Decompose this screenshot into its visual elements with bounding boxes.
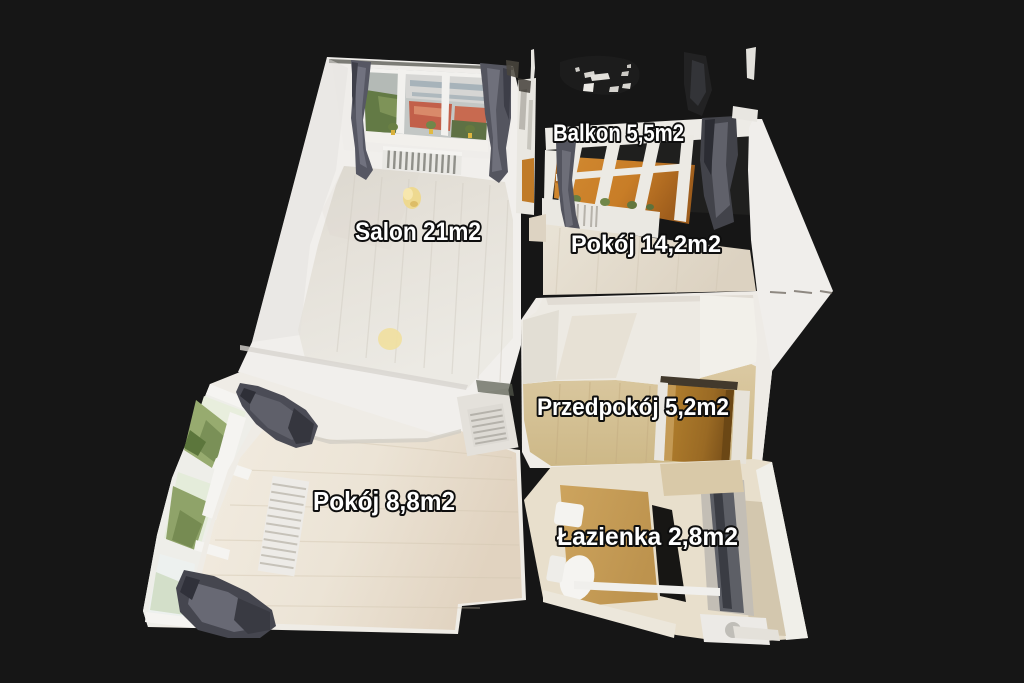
svg-text:Łazienka 2,8m2: Łazienka 2,8m2	[557, 523, 738, 551]
svg-text:Pokój 8,8m2: Pokój 8,8m2	[313, 486, 455, 516]
svg-text:Salon 21m2: Salon 21m2	[355, 218, 481, 246]
svg-text:Pokój 14,2m2: Pokój 14,2m2	[571, 231, 721, 258]
svg-text:Przedpokój 5,2m2: Przedpokój 5,2m2	[537, 394, 729, 421]
svg-text:Balkon 5,5m2: Balkon 5,5m2	[553, 120, 684, 147]
